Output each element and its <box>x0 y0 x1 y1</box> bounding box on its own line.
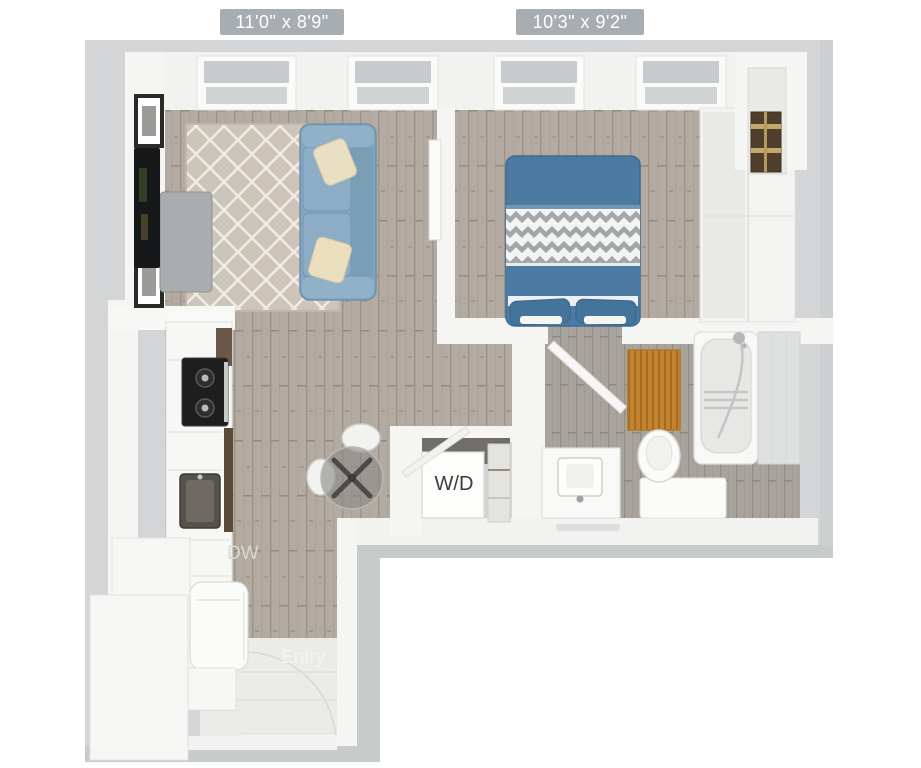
bedroom-dimension-badge: 10'3" x 9'2" <box>516 9 644 35</box>
tv-console <box>160 192 212 292</box>
bed <box>506 156 640 326</box>
window-3 <box>494 56 584 110</box>
sofa <box>300 124 376 300</box>
corridor-right-wall <box>337 518 357 746</box>
slab-leg-right-face <box>357 545 380 762</box>
slab-bottom-face <box>340 545 833 558</box>
picture-frame-1 <box>136 96 162 146</box>
kitchen-sink <box>180 474 220 528</box>
floorplan-canvas: 11'0" x 8'9" 10'3" x 9'2" W/D DW Entry <box>0 0 921 768</box>
faucet <box>577 496 584 503</box>
floorplan-rendering <box>0 0 921 768</box>
window-2 <box>348 56 438 110</box>
vanity-sink <box>542 448 620 531</box>
living-room-dimension-badge: 11'0" x 8'9" <box>220 9 344 35</box>
entry-label: Entry <box>281 647 325 669</box>
pantry-block <box>112 538 190 598</box>
sliding-door-panel <box>429 140 441 240</box>
suitcase <box>751 112 781 172</box>
shower-head <box>733 332 745 344</box>
window-1 <box>197 56 296 110</box>
refrigerator <box>190 582 248 670</box>
slab-right-face <box>820 40 833 558</box>
washer-dryer-label: W/D <box>424 473 484 496</box>
cooktop <box>182 358 228 426</box>
tv <box>134 148 160 268</box>
vanity-towel <box>556 524 620 531</box>
shower-tile-wall <box>758 332 800 464</box>
laundry-shelves <box>488 444 510 522</box>
window-4 <box>636 56 726 110</box>
bed-chevron-blanket <box>506 209 640 265</box>
bath-mat <box>628 350 680 430</box>
laundry-left-wall <box>390 426 422 535</box>
corner-wall-block <box>90 595 188 760</box>
dishwasher-label: DW <box>227 543 259 565</box>
counter-edge <box>224 428 233 532</box>
bathtub <box>694 332 758 464</box>
